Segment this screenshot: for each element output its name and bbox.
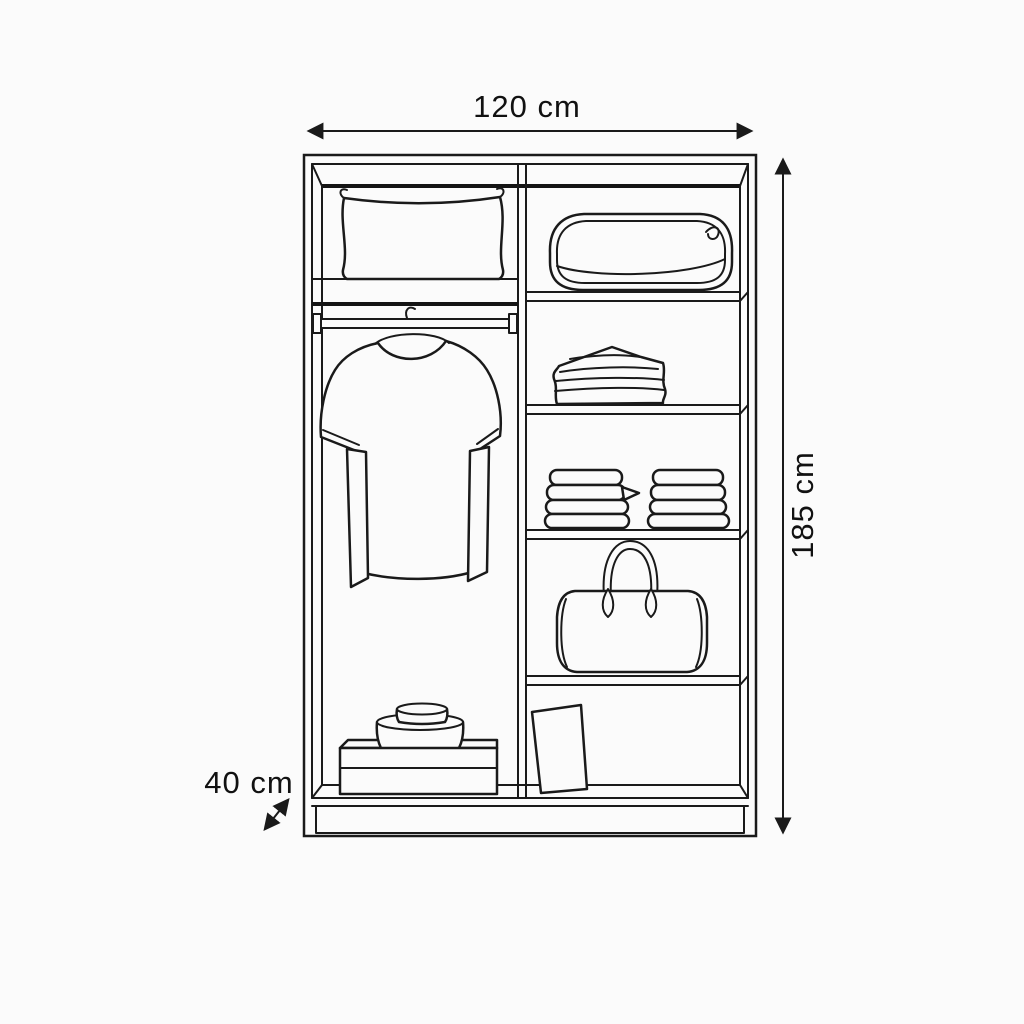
pillow bbox=[340, 188, 503, 279]
center-divider bbox=[518, 164, 526, 798]
hanger-hook-icon bbox=[406, 308, 415, 318]
width-dimension: 120 cm bbox=[309, 89, 751, 131]
wardrobe-dimension-diagram: 120 cm 185 cm 40 cm bbox=[0, 0, 1024, 1024]
towel-stack-left bbox=[545, 470, 639, 528]
rail-bar bbox=[321, 319, 509, 328]
right-compartment bbox=[526, 214, 748, 793]
floor-bevel-right bbox=[740, 785, 748, 798]
duffel-body bbox=[557, 591, 707, 672]
right-shelf-3 bbox=[526, 530, 748, 539]
rail-bracket-left bbox=[313, 314, 321, 333]
t-shirt bbox=[321, 334, 501, 587]
ceiling-bevel-left bbox=[312, 164, 322, 186]
floor-bevel-left bbox=[312, 785, 322, 798]
plinth bbox=[316, 806, 744, 833]
tshirt-collar bbox=[375, 334, 449, 344]
folded-clothes bbox=[554, 347, 666, 404]
towel-fold-flap bbox=[622, 487, 639, 500]
stacked-round-boxes bbox=[340, 704, 497, 752]
diagram-svg: 120 cm 185 cm 40 cm bbox=[0, 0, 1024, 1024]
width-dimension-label: 120 cm bbox=[473, 89, 581, 124]
rail-bracket-right bbox=[509, 314, 517, 333]
hanging-rail bbox=[313, 308, 517, 333]
duffel-bag bbox=[557, 541, 707, 672]
tshirt-sleeve-strip-right bbox=[468, 447, 489, 581]
depth-dimension-label: 40 cm bbox=[204, 765, 293, 800]
height-dimension: 185 cm bbox=[783, 160, 820, 832]
round-box-small-lid bbox=[397, 704, 447, 715]
left-compartment bbox=[312, 188, 518, 794]
depth-arrow bbox=[265, 800, 288, 829]
right-shelf-2 bbox=[526, 405, 748, 414]
storage-basket bbox=[550, 214, 732, 290]
storage-box bbox=[340, 748, 497, 794]
height-dimension-label: 185 cm bbox=[785, 451, 820, 559]
ceiling-bevel-right bbox=[740, 164, 748, 186]
depth-dimension: 40 cm bbox=[204, 765, 293, 829]
leaning-flat-box bbox=[532, 705, 587, 793]
right-shelf-1 bbox=[526, 292, 748, 301]
towel-stack-right bbox=[648, 470, 729, 528]
dimension-annotations: 120 cm 185 cm 40 cm bbox=[204, 89, 820, 832]
right-shelf-4 bbox=[526, 676, 748, 685]
tshirt-sleeve-strip-left bbox=[347, 449, 368, 587]
